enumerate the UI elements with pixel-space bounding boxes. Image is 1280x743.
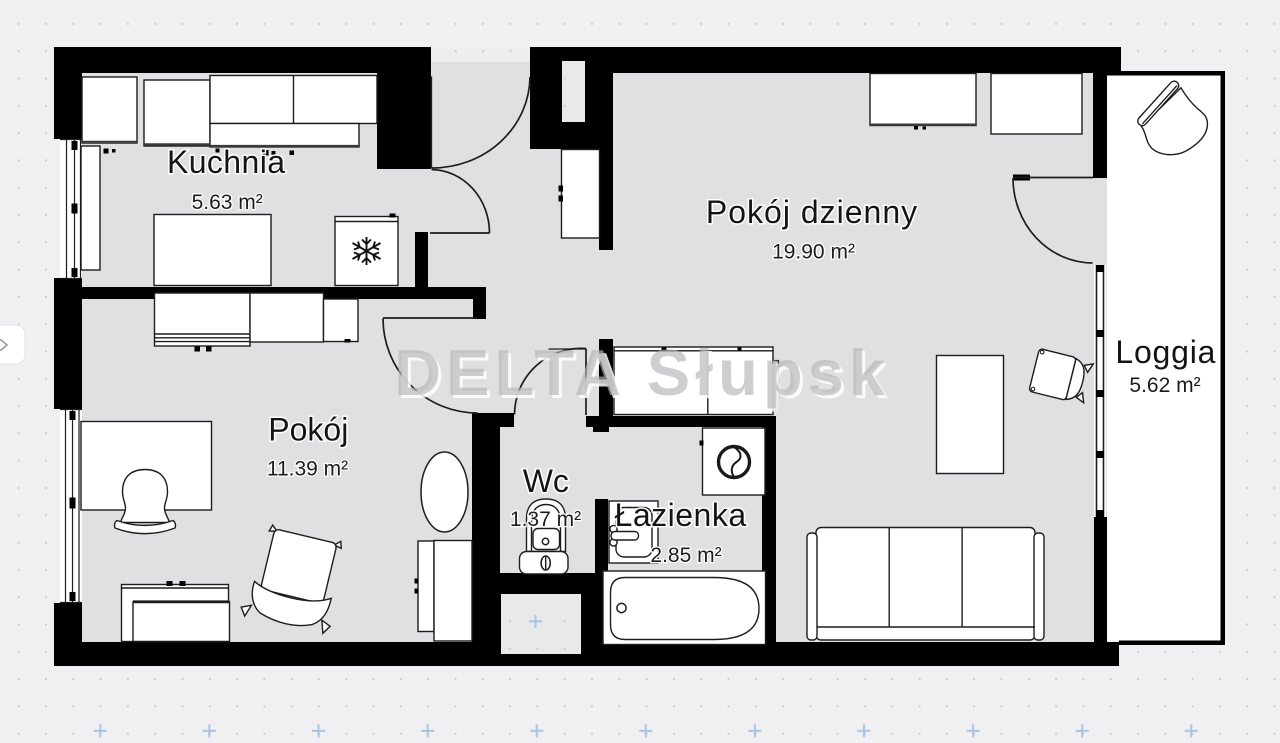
svg-text:Pokój dzienny: Pokój dzienny [706, 194, 918, 230]
svg-text:5.63 m²: 5.63 m² [192, 191, 263, 214]
svg-text:Łazienka: Łazienka [615, 497, 747, 533]
svg-text:2.85 m²: 2.85 m² [650, 544, 721, 567]
svg-text:1.37 m²: 1.37 m² [510, 508, 581, 531]
svg-text:11.39 m²: 11.39 m² [267, 458, 348, 481]
svg-text:DELTA Słupsk: DELTA Słupsk [394, 336, 890, 409]
svg-text:19.90 m²: 19.90 m² [772, 241, 855, 264]
svg-text:Loggia: Loggia [1115, 334, 1216, 370]
svg-text:Pokój: Pokój [268, 412, 348, 448]
svg-text:5.62 m²: 5.62 m² [1129, 374, 1200, 397]
svg-text:Kuchnia: Kuchnia [167, 144, 285, 180]
svg-text:Wc: Wc [523, 463, 569, 499]
